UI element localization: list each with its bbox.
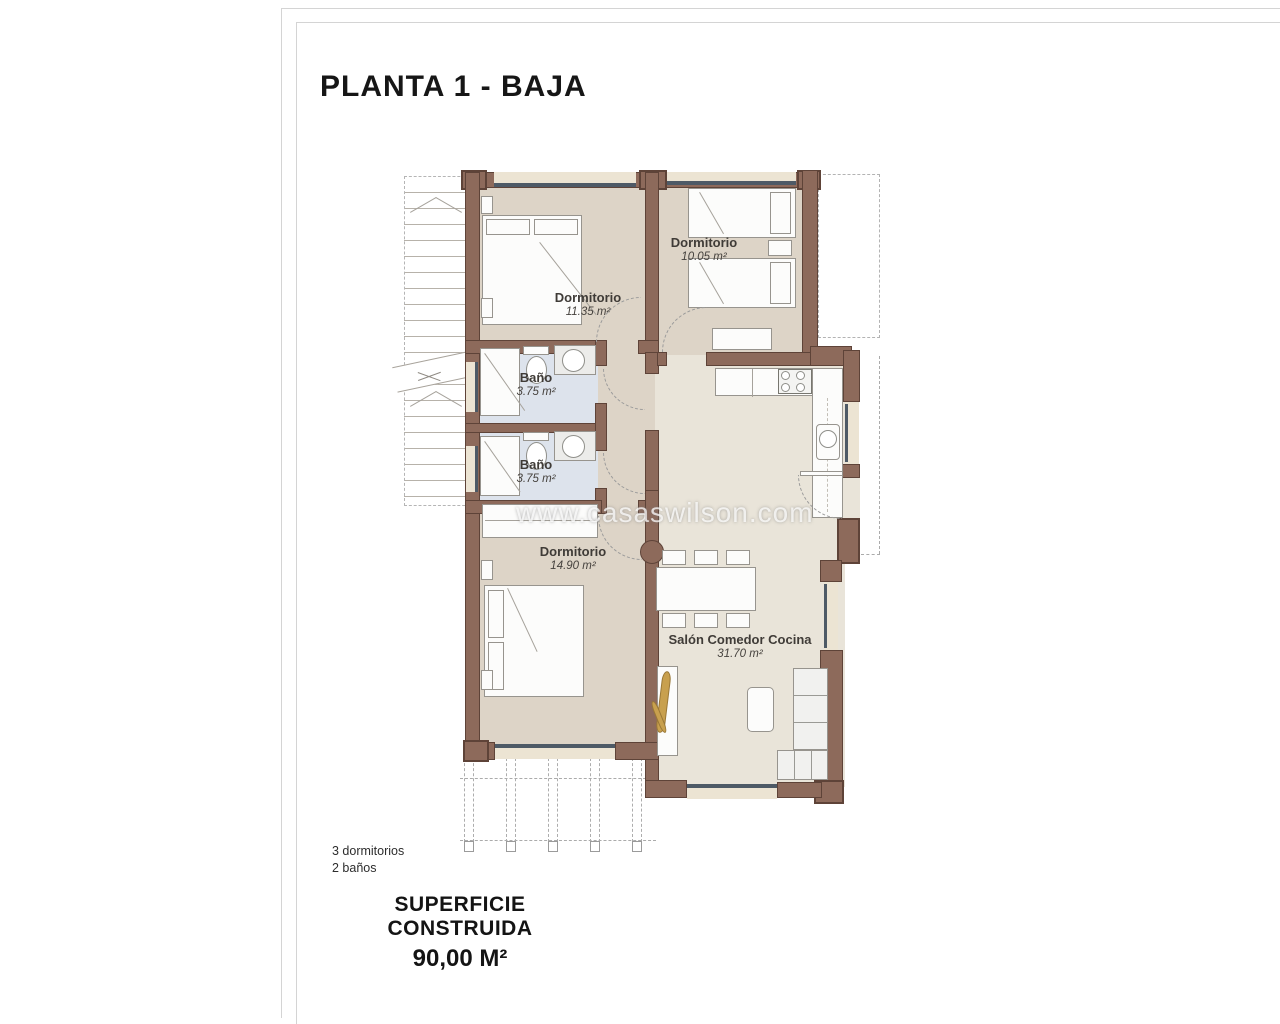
room-area: 10.05 m²	[671, 250, 737, 264]
room-name: Dormitorio	[555, 290, 621, 305]
wall	[645, 780, 687, 798]
pillow	[534, 219, 578, 235]
sink	[562, 349, 585, 372]
window	[845, 404, 848, 462]
burner	[796, 371, 805, 380]
pergola-post	[506, 758, 516, 842]
room-name: Dormitorio	[671, 235, 737, 250]
chair	[662, 550, 686, 565]
nightstand	[481, 298, 493, 318]
chair	[726, 550, 750, 565]
watermark: www.casaswilson.com	[516, 497, 814, 529]
window	[824, 584, 827, 648]
pergola-post-base	[464, 841, 474, 852]
room-label-dormitorio-3: Dormitorio 14.90 m²	[540, 545, 606, 573]
door-swing-arc	[603, 452, 645, 494]
wall	[645, 172, 659, 354]
window	[475, 446, 478, 492]
page-border-top	[281, 8, 1280, 9]
entry-threshold	[841, 477, 860, 519]
pergola-post	[548, 758, 558, 842]
round-column	[640, 540, 664, 564]
sofa	[793, 668, 828, 750]
room-area: 3.75 m²	[517, 385, 556, 399]
counter-divider	[752, 369, 753, 397]
entry-porch-outline	[879, 356, 880, 554]
wall	[706, 352, 818, 366]
coffee-table	[747, 687, 774, 732]
kitchen-sink-bowl	[819, 430, 837, 448]
pergola-post-base	[590, 841, 600, 852]
window-sill	[495, 748, 615, 759]
shower	[480, 436, 520, 496]
pergola-line	[460, 840, 656, 841]
wall	[615, 742, 659, 760]
room-label-dormitorio-1: Dormitorio 11.35 m²	[555, 291, 621, 319]
pergola-post-base	[506, 841, 516, 852]
wall	[777, 782, 822, 798]
pillow	[486, 219, 530, 235]
shower	[480, 348, 520, 416]
toilet-tank	[523, 346, 549, 355]
burner	[796, 383, 805, 392]
pergola-post	[632, 758, 642, 842]
inner-frame-top	[296, 22, 1280, 23]
summary-bathrooms: 2 baños	[332, 860, 376, 877]
door-swing-arc	[603, 368, 645, 410]
wall-pillar	[837, 518, 860, 564]
room-label-bano-2: Baño 3.75 m²	[517, 458, 556, 486]
nightstand	[481, 196, 493, 214]
window	[666, 181, 796, 185]
room-area: 11.35 m²	[555, 305, 621, 319]
nightstand	[481, 670, 493, 690]
window-sill	[687, 788, 777, 799]
pillow	[770, 262, 791, 304]
inner-frame-left	[296, 22, 297, 1024]
room-name: Salón Comedor Cocina	[668, 632, 811, 647]
room-name: Baño	[520, 370, 553, 385]
wall	[841, 464, 860, 478]
nightstand	[768, 240, 792, 256]
wall	[802, 170, 818, 362]
wall	[595, 403, 607, 451]
window	[475, 362, 478, 412]
wall	[645, 430, 659, 492]
chair	[662, 613, 686, 628]
room-area: 14.90 m²	[540, 559, 606, 573]
terrace-outline	[818, 174, 880, 338]
floor-plan-page: PLANTA 1 - BAJA	[0, 0, 1280, 1024]
window	[494, 183, 636, 187]
room-name: Dormitorio	[540, 544, 606, 559]
sofa-chaise	[777, 750, 828, 780]
room-area: 31.70 m²	[668, 647, 811, 661]
door-swing-arc	[662, 307, 707, 352]
wall	[843, 350, 860, 402]
chair	[694, 550, 718, 565]
wall-pillar	[463, 740, 489, 762]
pergola-post	[464, 758, 474, 842]
summary-bedrooms: 3 dormitorios	[332, 843, 404, 860]
pillow	[488, 590, 504, 638]
shower-drain-line	[484, 441, 520, 492]
dresser	[712, 328, 772, 350]
wall	[820, 560, 842, 582]
pergola-post-base	[548, 841, 558, 852]
pillow	[770, 192, 791, 234]
page-border-left	[281, 8, 282, 1018]
pergola-line	[460, 778, 656, 779]
surface-label: SUPERFICIE CONSTRUIDA	[330, 893, 590, 941]
wall	[595, 340, 607, 366]
room-label-bano-1: Baño 3.75 m²	[517, 371, 556, 399]
room-label-salon: Salón Comedor Cocina 31.70 m²	[668, 633, 811, 661]
nightstand	[481, 560, 493, 580]
room-area: 3.75 m²	[517, 472, 556, 486]
burner	[781, 383, 790, 392]
surface-block: SUPERFICIE CONSTRUIDA 90,00 M²	[330, 893, 590, 973]
chair	[694, 613, 718, 628]
pergola-post	[590, 758, 600, 842]
page-title: PLANTA 1 - BAJA	[320, 70, 587, 104]
wall	[657, 352, 667, 366]
sink	[562, 435, 585, 458]
staircase	[404, 176, 470, 506]
room-label-dormitorio-2: Dormitorio 10.05 m²	[671, 236, 737, 264]
toilet-tank	[523, 432, 549, 441]
burner	[781, 371, 790, 380]
surface-value: 90,00 M²	[330, 945, 590, 973]
room-name: Baño	[520, 457, 553, 472]
dining-table	[656, 567, 756, 611]
window-sill	[494, 172, 636, 183]
chair	[726, 613, 750, 628]
pergola-post-base	[632, 841, 642, 852]
